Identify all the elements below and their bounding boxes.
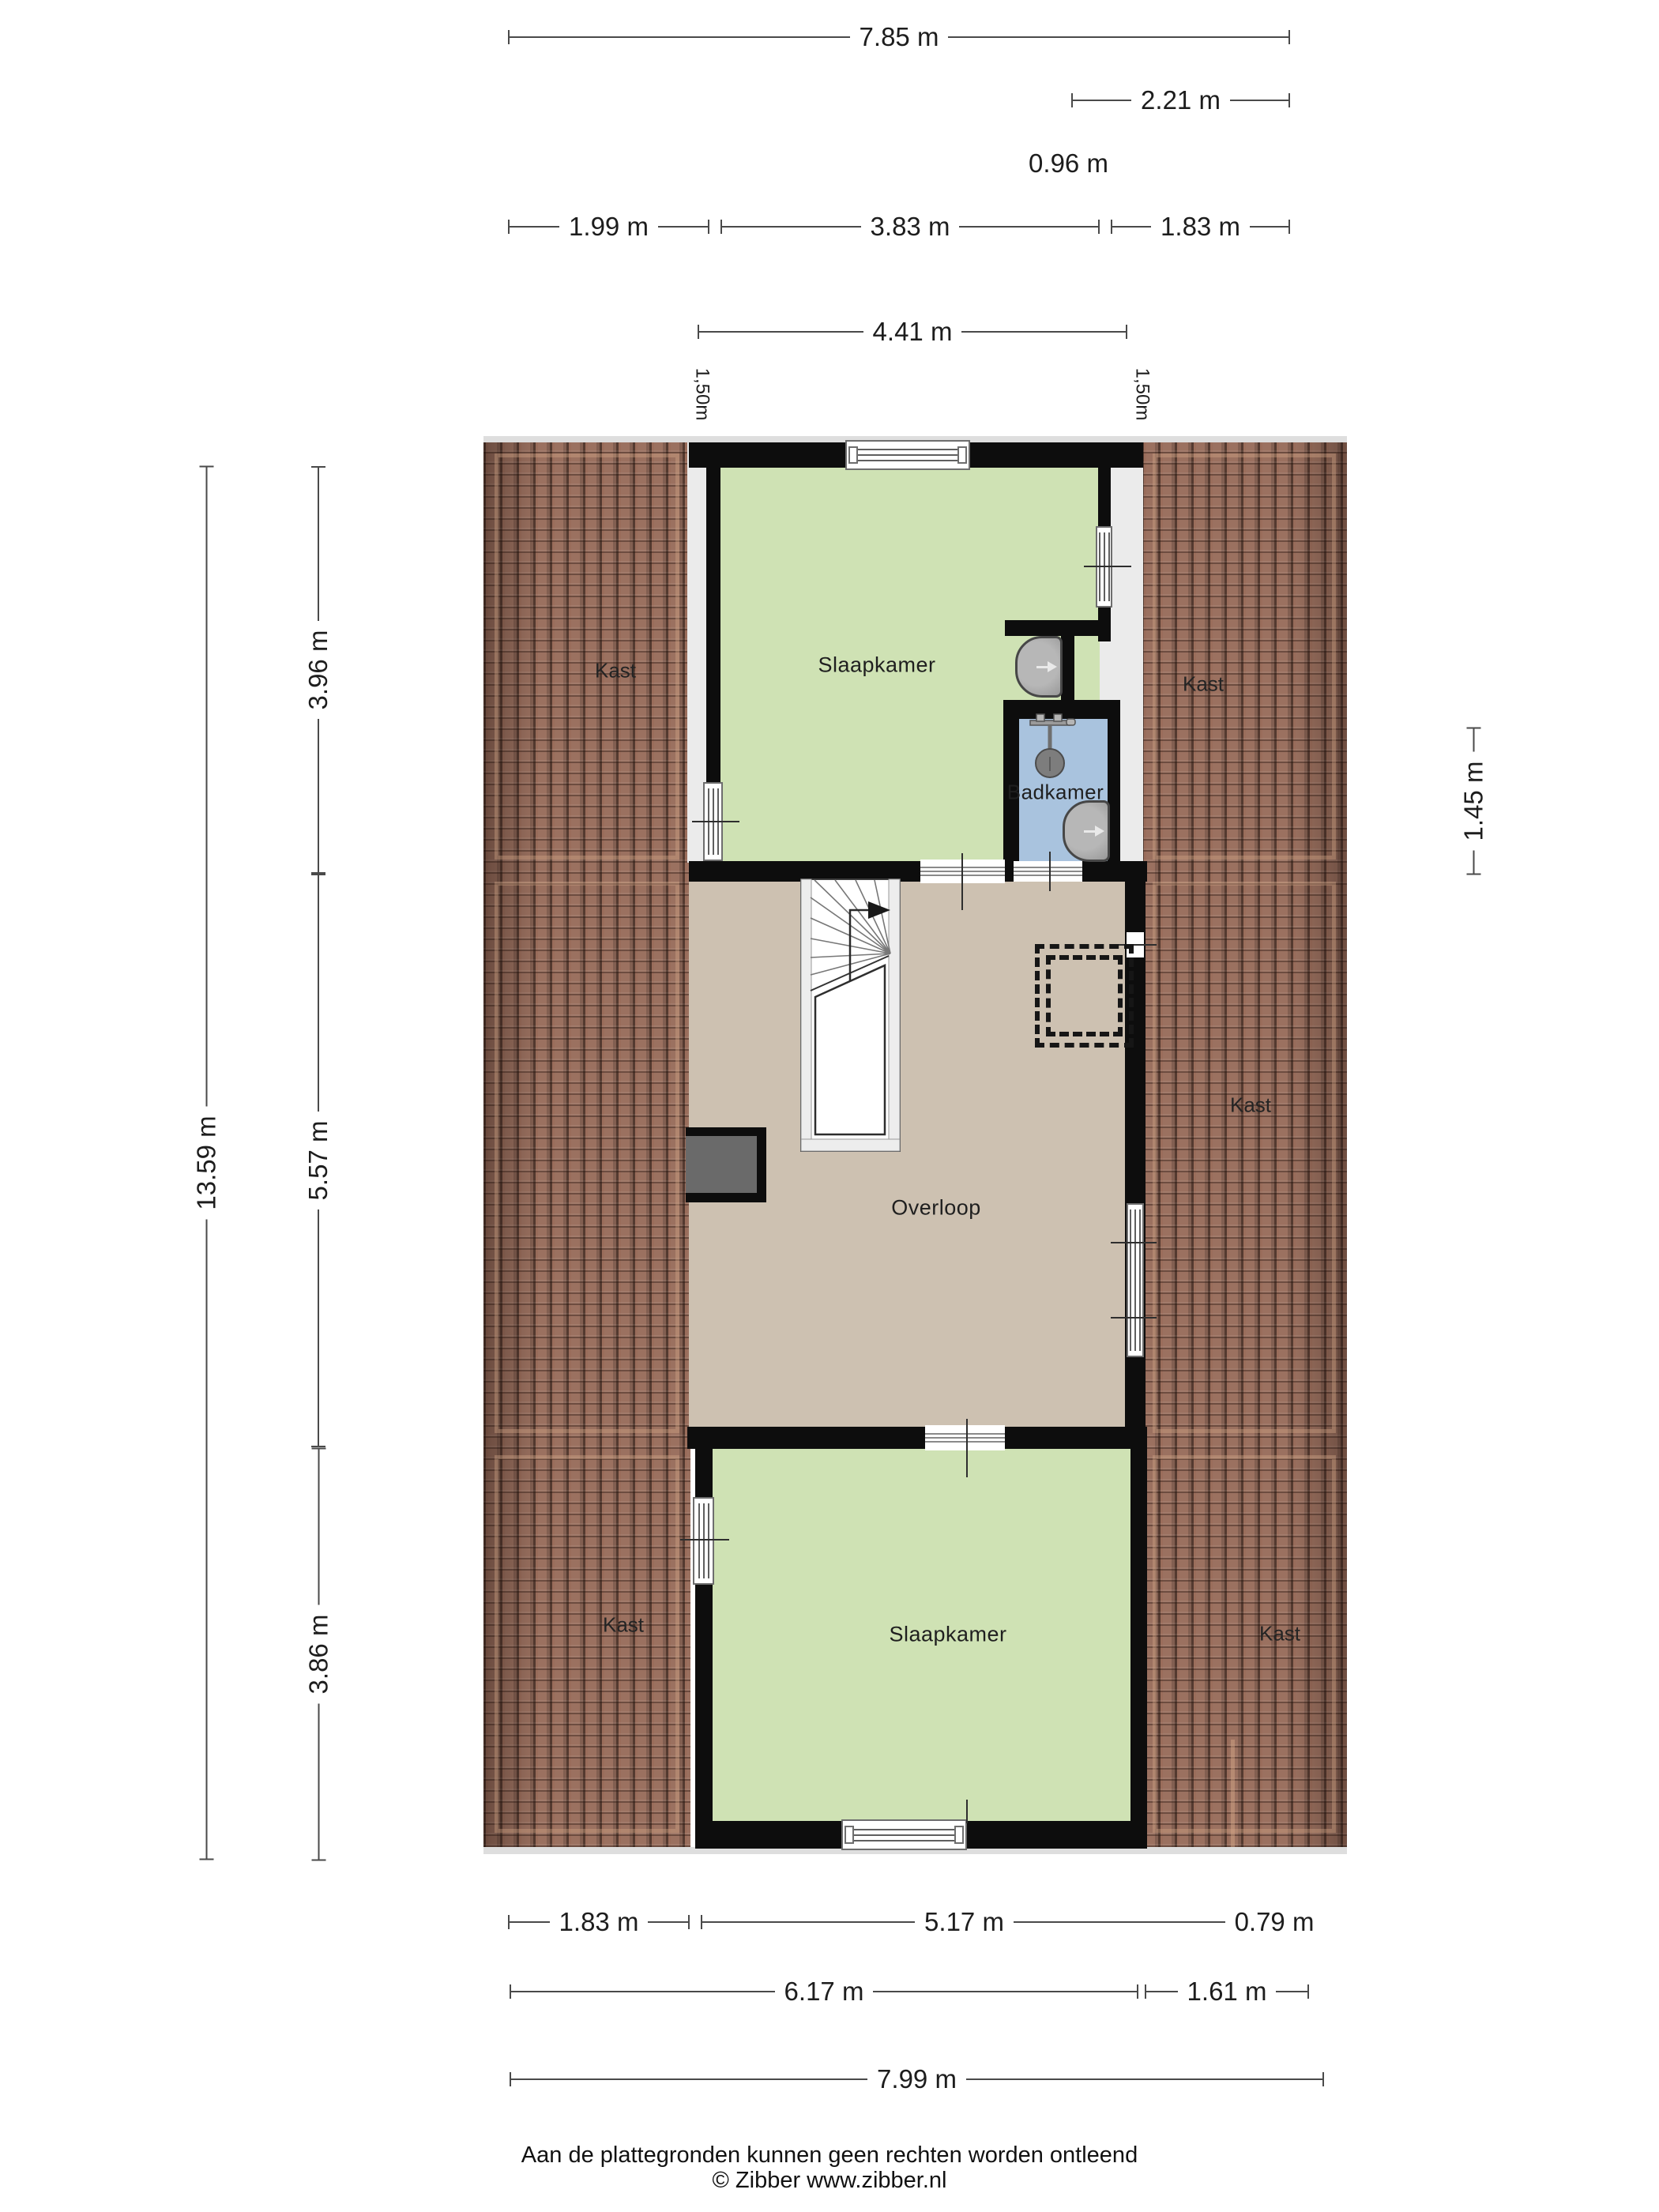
door-threshold bbox=[925, 1433, 1005, 1443]
hatch-dashed-inner bbox=[1046, 955, 1123, 1036]
door-tick bbox=[961, 853, 963, 910]
dim-label: 6.17 m bbox=[775, 1977, 874, 2007]
dim-150-left: 1,50m bbox=[690, 368, 713, 421]
room-label-badkamer: Badkamer bbox=[1007, 781, 1104, 805]
window-tick bbox=[1111, 1317, 1157, 1319]
dim-tick bbox=[311, 874, 325, 875]
dim-label: 1.83 m bbox=[1151, 212, 1250, 242]
dim-label: 3.96 m bbox=[303, 621, 333, 720]
room-label-kast-top-right: Kast bbox=[1183, 672, 1224, 697]
dim-183-top: 1.83 m bbox=[1111, 213, 1290, 241]
dim-tick bbox=[508, 220, 510, 234]
dim-tick bbox=[1288, 220, 1290, 234]
dim-tick bbox=[1126, 325, 1127, 339]
room-label-kast-top-left: Kast bbox=[595, 659, 636, 683]
dim-tick bbox=[701, 1915, 702, 1929]
wall-bedroombottom-right bbox=[1130, 1447, 1147, 1823]
wall-section-bottom bbox=[687, 1427, 1147, 1449]
door-threshold bbox=[1014, 867, 1082, 876]
dim-221: 2.21 m bbox=[1071, 86, 1290, 115]
shower-icon bbox=[1027, 713, 1076, 779]
dim-145: 1.45 m bbox=[1459, 727, 1488, 875]
roof-left-wing bbox=[483, 442, 690, 1847]
window-panes bbox=[1130, 1209, 1141, 1351]
footer-copyright: © Zibber www.zibber.nl bbox=[0, 2168, 1659, 2194]
dim-785: 7.85 m bbox=[508, 23, 1290, 51]
window-bedroombottom-left bbox=[693, 1497, 714, 1585]
dim-799: 7.99 m bbox=[510, 2065, 1324, 2093]
dim-tick bbox=[708, 220, 709, 234]
dim-tick bbox=[1288, 93, 1290, 107]
roof-ridge-inset bbox=[495, 453, 679, 860]
dim-199: 1.99 m bbox=[508, 213, 709, 241]
roof-ridge-line bbox=[1231, 1740, 1235, 1847]
dim-tick bbox=[1137, 1984, 1138, 1999]
dim-tick bbox=[1071, 93, 1073, 107]
dim-tick bbox=[199, 466, 213, 468]
door-bathroom bbox=[1014, 861, 1082, 882]
dim-tick bbox=[311, 1447, 325, 1449]
window-peg bbox=[954, 1826, 964, 1844]
dim-label: 7.85 m bbox=[850, 22, 949, 52]
dim-079: 0.79 m bbox=[1234, 1908, 1315, 1936]
dim-label: 1.83 m bbox=[550, 1907, 649, 1937]
dim-1359: 13.59 m bbox=[192, 466, 220, 1860]
faucet-icon bbox=[1084, 826, 1104, 837]
roof-ridge-inset bbox=[1153, 882, 1336, 1433]
room-label-slaapkamer-top: Slaapkamer bbox=[818, 653, 935, 678]
dim-441: 4.41 m bbox=[698, 318, 1127, 346]
dim-161: 1.61 m bbox=[1145, 1977, 1309, 2006]
dim-tick bbox=[508, 1915, 510, 1929]
room-label-kast-bottom-right: Kast bbox=[1259, 1622, 1300, 1646]
door-bedroombottom bbox=[925, 1425, 1005, 1450]
dim-386: 3.86 m bbox=[304, 1447, 333, 1860]
dim-label: 13.59 m bbox=[191, 1106, 221, 1219]
chimney-core bbox=[686, 1136, 757, 1193]
washbasin-icon bbox=[1015, 636, 1063, 698]
dim-tick bbox=[311, 466, 325, 468]
dim-tick bbox=[1288, 30, 1290, 44]
room-label-overloop: Overloop bbox=[891, 1196, 981, 1221]
window-panes bbox=[849, 1829, 959, 1841]
window-tick bbox=[680, 1539, 729, 1540]
dim-label: 0.96 m bbox=[1019, 149, 1118, 179]
window-tick bbox=[1084, 566, 1131, 567]
window-peg bbox=[845, 1826, 854, 1844]
dim-tick bbox=[508, 30, 510, 44]
dim-tick bbox=[720, 220, 722, 234]
dim-tick bbox=[698, 325, 699, 339]
roof-window-landing bbox=[1127, 1203, 1144, 1357]
roof-ridge-inset bbox=[495, 1455, 679, 1833]
dim-tick bbox=[311, 1859, 325, 1860]
dim-label: 1.99 m bbox=[559, 212, 658, 242]
window-tick bbox=[1111, 1242, 1157, 1243]
washbasin-icon bbox=[1063, 800, 1110, 862]
dim-tick bbox=[1098, 220, 1100, 234]
dim-label: 7.99 m bbox=[867, 2064, 966, 2094]
roof-right-wing bbox=[1142, 442, 1347, 1847]
faucet-icon bbox=[1036, 661, 1057, 672]
wall-nook-top bbox=[1005, 620, 1109, 636]
dim-183-bottom: 1.83 m bbox=[508, 1908, 690, 1936]
door-tick bbox=[966, 1419, 968, 1477]
dim-label: 5.57 m bbox=[303, 1112, 333, 1210]
hatch-dashed-outline bbox=[1035, 944, 1134, 1048]
dim-label: 2.21 m bbox=[1131, 85, 1230, 115]
window-peg bbox=[848, 446, 858, 464]
dim-tick bbox=[199, 1859, 213, 1860]
dim-tick bbox=[1111, 220, 1112, 234]
dim-tick bbox=[1145, 1984, 1146, 1999]
roof-ridge-inset bbox=[495, 882, 679, 1433]
dim-tick bbox=[1322, 2072, 1324, 2086]
dim-150-right: 1,50m bbox=[1130, 368, 1153, 421]
dim-tick bbox=[510, 1984, 511, 1999]
dim-label: 5.17 m bbox=[915, 1907, 1014, 1937]
room-label-slaapkamer-bottom: Slaapkamer bbox=[889, 1623, 1006, 1647]
room-label-kast-mid-right: Kast bbox=[1230, 1093, 1271, 1118]
dim-tick bbox=[688, 1915, 690, 1929]
window-tick bbox=[966, 1800, 968, 1823]
dim-517: 5.17 m bbox=[701, 1908, 1228, 1936]
roof-ridge-inset bbox=[1153, 1455, 1336, 1833]
dim-label: 1.61 m bbox=[1178, 1977, 1277, 2007]
window-panes bbox=[698, 1503, 709, 1578]
dim-096: 0.96 m bbox=[1019, 149, 1118, 178]
floorplan-canvas: Slaapkamer Badkamer Overloop Slaapkamer … bbox=[0, 0, 1659, 2212]
window-bottom bbox=[841, 1819, 967, 1850]
dim-tick bbox=[1466, 727, 1480, 728]
roof-ridge-inset bbox=[1153, 453, 1336, 860]
door-tick bbox=[1049, 852, 1051, 891]
staircase bbox=[800, 878, 901, 1152]
window-top bbox=[845, 440, 970, 470]
dim-396: 3.96 m bbox=[304, 466, 333, 874]
dim-tick bbox=[1466, 873, 1480, 875]
dim-label: 4.41 m bbox=[863, 317, 962, 347]
dim-tick bbox=[510, 2072, 511, 2086]
dim-label: 1.45 m bbox=[1458, 751, 1488, 850]
wall-nook-stub bbox=[1061, 631, 1074, 702]
dim-label: 3.86 m bbox=[303, 1604, 333, 1703]
window-panes bbox=[853, 449, 962, 461]
dim-label: 3.83 m bbox=[861, 212, 960, 242]
window-peg bbox=[957, 446, 967, 464]
dim-617: 6.17 m bbox=[510, 1977, 1138, 2006]
room-label-kast-bottom-left: Kast bbox=[603, 1613, 644, 1638]
dim-557: 5.57 m bbox=[304, 874, 333, 1447]
dim-label: 0.79 m bbox=[1225, 1907, 1324, 1937]
dim-tick bbox=[1307, 1984, 1309, 1999]
window-tick bbox=[692, 821, 739, 822]
footer-disclaimer: Aan de plattegronden kunnen geen rechten… bbox=[0, 2142, 1659, 2169]
dim-383: 3.83 m bbox=[720, 213, 1100, 241]
